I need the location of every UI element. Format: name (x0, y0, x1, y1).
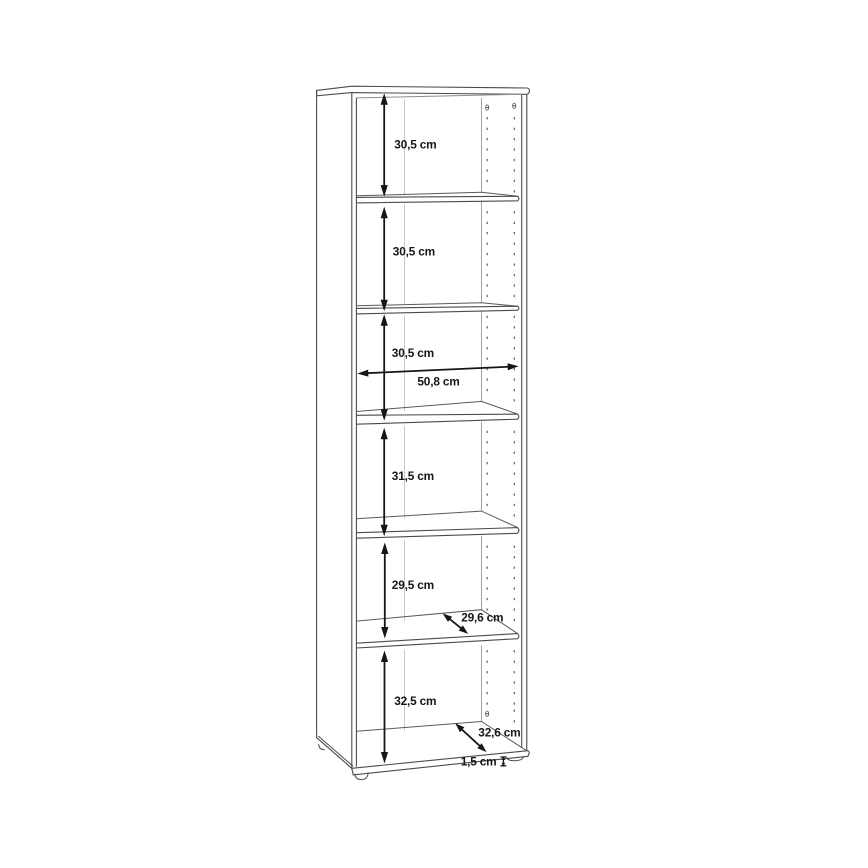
svg-text:50,8 cm: 50,8 cm (417, 374, 459, 388)
svg-text:30,5 cm: 30,5 cm (392, 346, 434, 360)
svg-text:32,6 cm: 32,6 cm (478, 726, 520, 740)
svg-text:1,5 cm: 1,5 cm (461, 755, 497, 769)
svg-text:31,5 cm: 31,5 cm (392, 469, 434, 483)
svg-text:29,6 cm: 29,6 cm (461, 611, 503, 625)
svg-text:29,5 cm: 29,5 cm (392, 578, 434, 592)
svg-text:30,5 cm: 30,5 cm (394, 138, 436, 152)
svg-text:32,5 cm: 32,5 cm (394, 694, 436, 708)
svg-text:30,5 cm: 30,5 cm (393, 245, 435, 259)
